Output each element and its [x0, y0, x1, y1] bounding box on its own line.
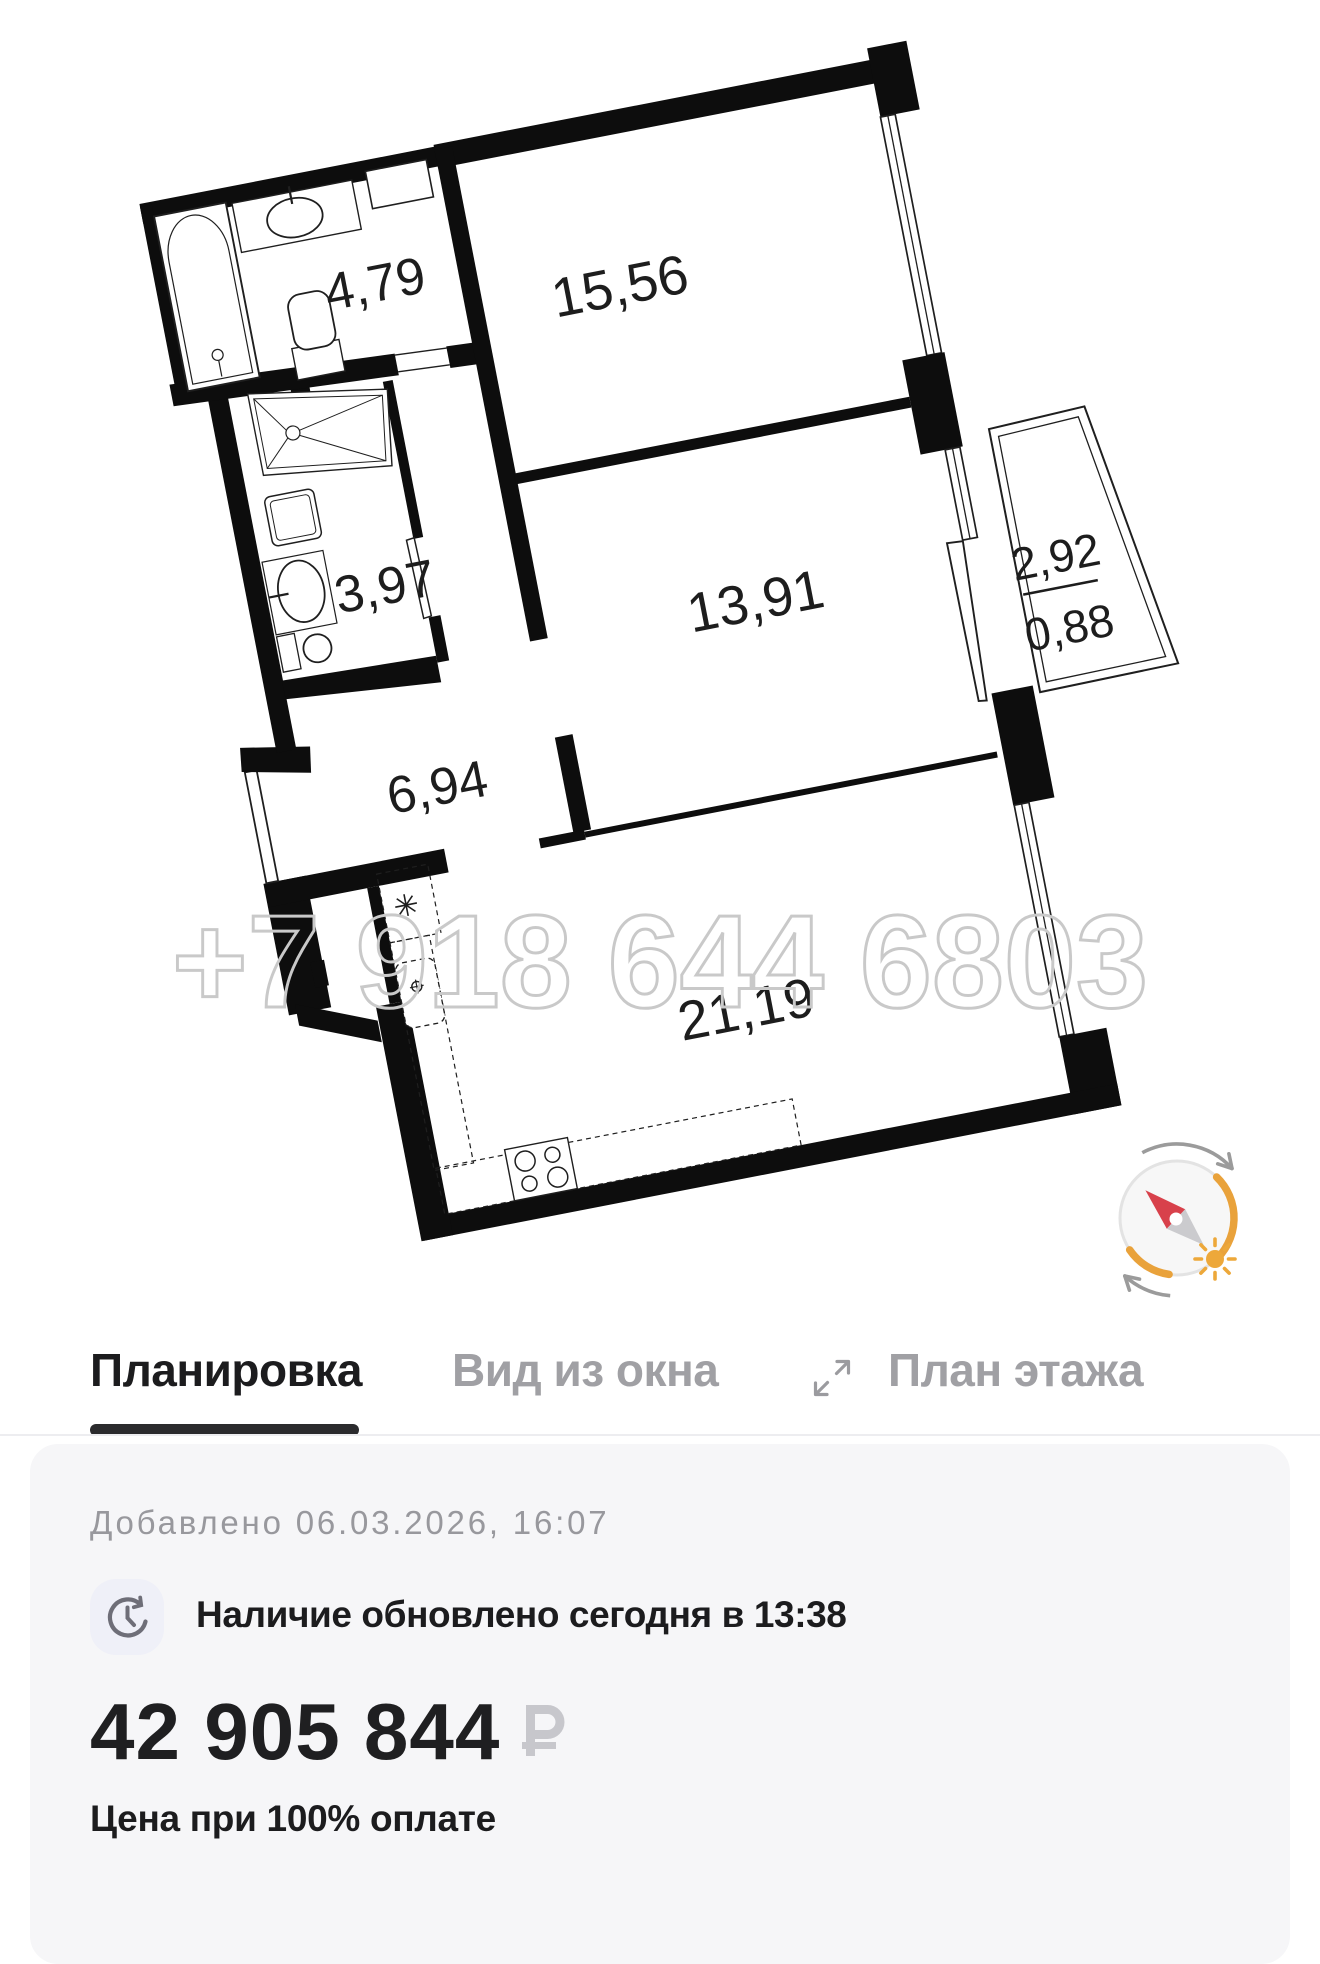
svg-text:6,94: 6,94 — [382, 750, 492, 826]
svg-text:13,91: 13,91 — [682, 557, 829, 644]
svg-text:+7 918 644 6803: +7 918 644 6803 — [172, 888, 1148, 1035]
svg-text:15,56: 15,56 — [546, 242, 693, 329]
svg-text:4,79: 4,79 — [320, 246, 430, 322]
